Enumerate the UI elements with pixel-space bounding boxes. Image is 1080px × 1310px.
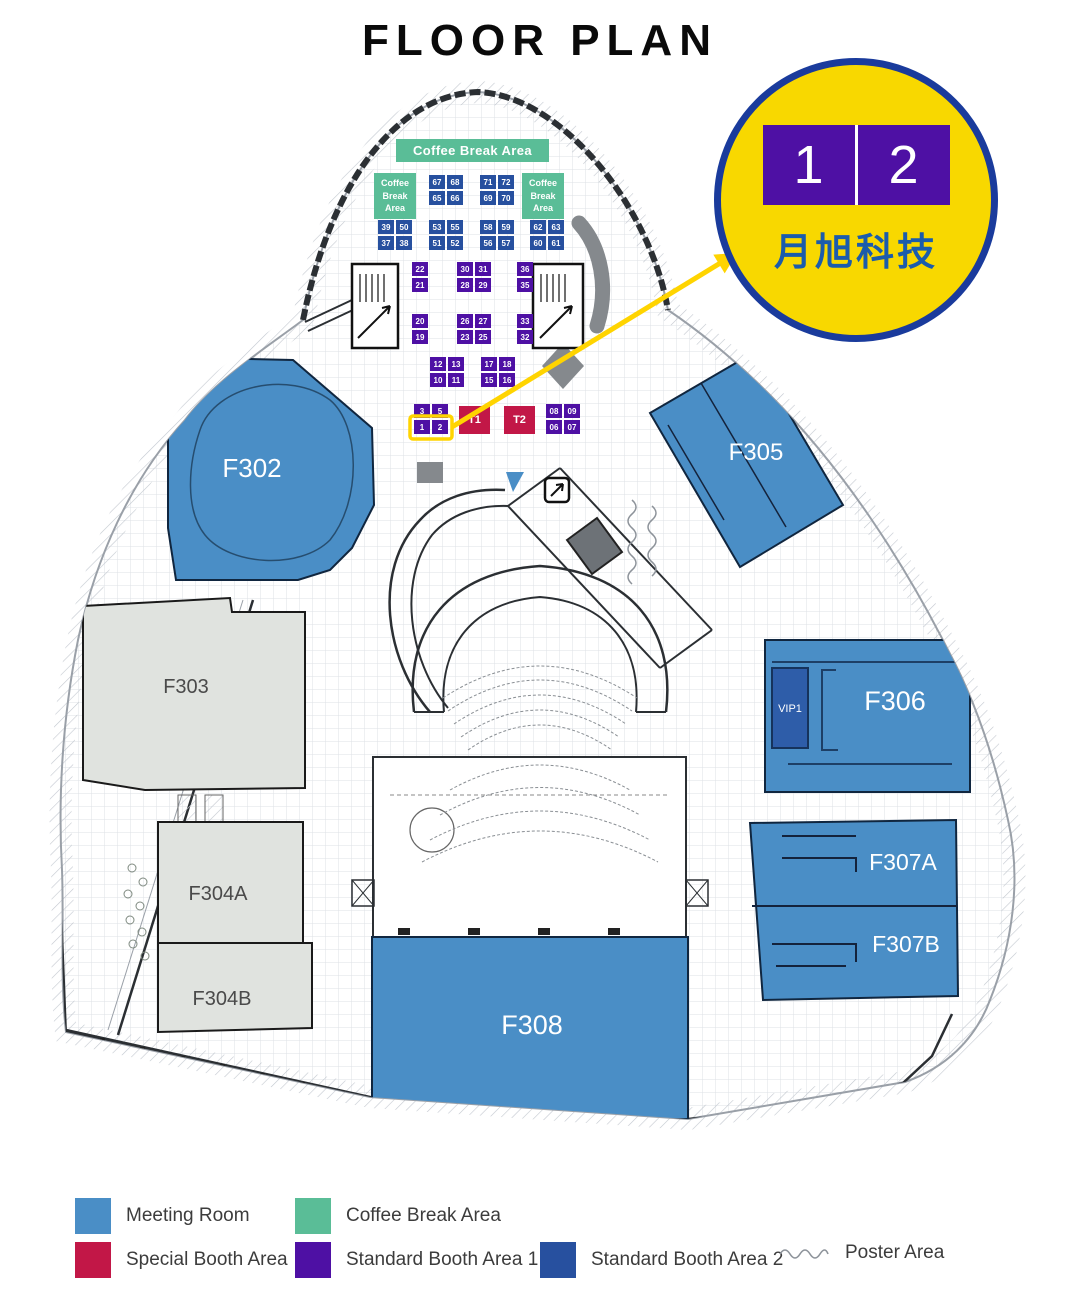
booth-33: 33 <box>517 314 533 328</box>
cluster-56-59: 58595657 <box>480 220 514 250</box>
booth-3: 3 <box>414 404 430 418</box>
booth-16: 16 <box>499 373 515 387</box>
cluster-32-33: 3332 <box>517 314 533 344</box>
cluster-69-72: 71726970 <box>480 175 514 205</box>
page-title: FLOOR PLAN <box>0 16 1080 66</box>
legend-item-special-booth-area: Special Booth Area <box>75 1242 288 1278</box>
booth-38: 38 <box>396 236 412 250</box>
booth-53: 53 <box>429 220 445 234</box>
legend-item-standard-booth-area-2: Standard Booth Area 2 <box>540 1242 783 1278</box>
legend-item-standard-booth-area-1: Standard Booth Area 1 <box>295 1242 538 1278</box>
booth-21: 21 <box>412 278 428 292</box>
meeting-room-swatch <box>75 1198 111 1234</box>
booth-72: 72 <box>498 175 514 189</box>
booth-68: 68 <box>447 175 463 189</box>
booth-63: 63 <box>548 220 564 234</box>
booth-26: 26 <box>457 314 473 328</box>
booth-23: 23 <box>457 330 473 344</box>
booth-19: 19 <box>412 330 428 344</box>
booth-39: 39 <box>378 220 394 234</box>
badge-company-name: 月旭科技 <box>774 221 938 276</box>
cluster-10-13: 12131011 <box>430 357 464 387</box>
badge-booth-1: 1 <box>763 125 855 205</box>
booth-37: 37 <box>378 236 394 250</box>
booth-51: 51 <box>429 236 445 250</box>
cluster-06-09: 08090607 <box>546 404 580 434</box>
badge-booth-2: 2 <box>858 125 950 205</box>
cluster-60-63: 62636061 <box>530 220 564 250</box>
standard-booth-1-swatch <box>295 1242 331 1278</box>
booth-20: 20 <box>412 314 428 328</box>
booth-17: 17 <box>481 357 497 371</box>
booth-69: 69 <box>480 191 496 205</box>
booth-13: 13 <box>448 357 464 371</box>
booth-52: 52 <box>447 236 463 250</box>
legend-item-coffee-break-area: Coffee Break Area <box>295 1198 501 1234</box>
legend-item-poster-area: Poster Area <box>778 1242 944 1264</box>
booth-56: 56 <box>480 236 496 250</box>
booth-11: 11 <box>448 373 464 387</box>
booth-60: 60 <box>530 236 546 250</box>
special-booth-swatch <box>75 1242 111 1278</box>
cluster-28-31: 30312829 <box>457 262 491 292</box>
booth-61: 61 <box>548 236 564 250</box>
cluster-21-22: 2221 <box>412 262 428 292</box>
badge-booth-squares: 1 2 <box>763 125 950 205</box>
booth-12: 12 <box>430 357 446 371</box>
booth-18: 18 <box>499 357 515 371</box>
booth-5: 5 <box>432 404 448 418</box>
legend-item-meeting-room: Meeting Room <box>75 1198 250 1234</box>
booth-22: 22 <box>412 262 428 276</box>
booth-10: 10 <box>430 373 446 387</box>
booth-35: 35 <box>517 278 533 292</box>
booth-32: 32 <box>517 330 533 344</box>
booth-70: 70 <box>498 191 514 205</box>
booth-1: 1 <box>414 420 430 434</box>
coffee-area-left: CoffeeBreakArea <box>374 173 416 219</box>
booth-50: 50 <box>396 220 412 234</box>
booth-06: 06 <box>546 420 562 434</box>
booth-31: 31 <box>475 262 491 276</box>
booth-07: 07 <box>564 420 580 434</box>
cluster-23-27: 26272325 <box>457 314 491 344</box>
booth-2: 2 <box>432 420 448 434</box>
booth-28: 28 <box>457 278 473 292</box>
cluster-65-68: 67686566 <box>429 175 463 205</box>
coffee-area-right: CoffeeBreakArea <box>522 173 564 219</box>
cluster-1-5: 3512 <box>414 404 448 434</box>
cluster-37-50: 39503738 <box>378 220 412 250</box>
booth-T2: T2 <box>504 406 535 434</box>
cluster-35-36: 3635 <box>517 262 533 292</box>
booth-55: 55 <box>447 220 463 234</box>
coffee-break-swatch <box>295 1198 331 1234</box>
booth-27: 27 <box>475 314 491 328</box>
floor-plan-page: F302 F305 F306 VIP1 F307A F307B F308 F30… <box>0 0 1080 1310</box>
poster-area-wavy-icon <box>778 1245 830 1261</box>
booth-29: 29 <box>475 278 491 292</box>
booth-71: 71 <box>480 175 496 189</box>
booth-59: 59 <box>498 220 514 234</box>
booth-callout-badge: 1 2 月旭科技 <box>714 58 998 342</box>
booth-30: 30 <box>457 262 473 276</box>
booth-66: 66 <box>447 191 463 205</box>
booth-25: 25 <box>475 330 491 344</box>
booth-08: 08 <box>546 404 562 418</box>
booth-T1: T1 <box>459 406 490 434</box>
booth-36: 36 <box>517 262 533 276</box>
booth-65: 65 <box>429 191 445 205</box>
standard-booth-2-swatch <box>540 1242 576 1278</box>
booth-58: 58 <box>480 220 496 234</box>
booth-57: 57 <box>498 236 514 250</box>
booth-67: 67 <box>429 175 445 189</box>
cluster-15-18: 17181516 <box>481 357 515 387</box>
booth-62: 62 <box>530 220 546 234</box>
cluster-19-20: 2019 <box>412 314 428 344</box>
booth-09: 09 <box>564 404 580 418</box>
booth-15: 15 <box>481 373 497 387</box>
cluster-51-55: 53555152 <box>429 220 463 250</box>
